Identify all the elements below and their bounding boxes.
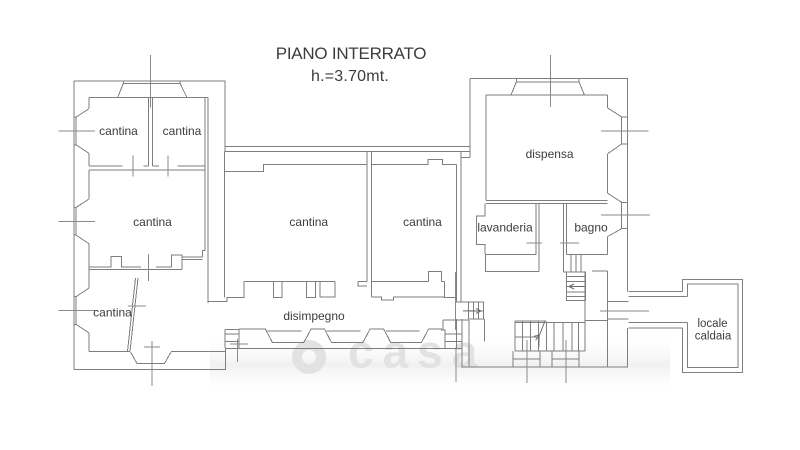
svg-text:caldaia: caldaia xyxy=(695,331,732,343)
svg-text:lavanderia: lavanderia xyxy=(477,221,533,235)
svg-text:dispensa: dispensa xyxy=(526,147,574,161)
svg-text:locale: locale xyxy=(697,318,727,330)
svg-text:cantina: cantina xyxy=(99,124,138,138)
svg-text:disimpegno: disimpegno xyxy=(283,309,345,323)
svg-text:PIANO INTERRATO: PIANO INTERRATO xyxy=(276,44,427,63)
svg-text:bagno: bagno xyxy=(574,221,608,235)
svg-text:cantina: cantina xyxy=(93,306,132,320)
svg-text:h.=3.70mt.: h.=3.70mt. xyxy=(311,68,389,85)
svg-text:cantina: cantina xyxy=(133,215,172,229)
svg-text:cantina: cantina xyxy=(289,215,328,229)
svg-text:casa: casa xyxy=(348,326,486,378)
svg-text:cantina: cantina xyxy=(163,124,202,138)
svg-text:cantina: cantina xyxy=(403,215,442,229)
